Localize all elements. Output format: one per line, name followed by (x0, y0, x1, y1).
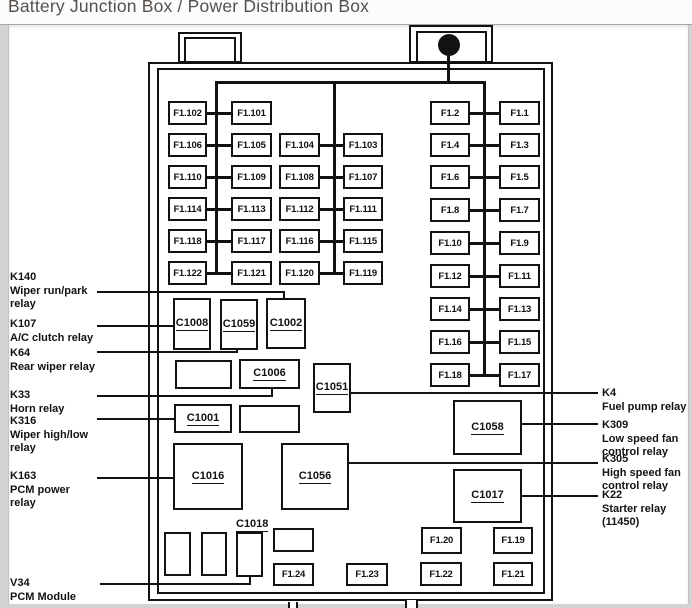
connector-label: C1017 (471, 489, 503, 503)
fuse-link-line (468, 144, 501, 147)
relay-label-k163: K163PCM powerrelay (10, 470, 70, 511)
fuse-link-line (318, 240, 345, 243)
pointer-line (97, 351, 238, 353)
fuse-box-f1-105: F1.105 (231, 133, 272, 157)
fuse-box-f1-4: F1.4 (430, 133, 470, 157)
fuse-link-line (205, 272, 233, 275)
connector-label: C1002 (270, 317, 302, 331)
connector-box-c1017: C1017 (453, 469, 522, 523)
pointer-line (97, 418, 176, 420)
pointer-line (97, 325, 175, 327)
pointer-line (249, 576, 251, 585)
connector-label: C1001 (187, 412, 219, 426)
relay-label-k316: K316Wiper high/lowrelay (10, 415, 88, 456)
relay-label-line: K163 (10, 470, 70, 484)
relay-label-line: K305 (602, 453, 681, 467)
fuse-link-line (468, 374, 501, 377)
connector-box-c1056: C1056 (281, 443, 349, 510)
fuse-box-f1-23: F1.23 (346, 563, 388, 586)
fuse-box-f1-13: F1.13 (499, 297, 540, 321)
fuse-box-f1-118: F1.118 (168, 229, 207, 253)
fuse-box-f1-2: F1.2 (430, 101, 470, 125)
relay-label-k33: K33Horn relay (10, 389, 64, 416)
fuse-box-f1-14: F1.14 (430, 297, 470, 321)
fuse-box-f1-106: F1.106 (168, 133, 207, 157)
fuse-link-line (468, 112, 501, 115)
connector-label: C1058 (471, 421, 503, 435)
relay-label-line: relay (10, 298, 88, 312)
relay-label-line: Low speed fan (602, 433, 678, 447)
fuse-box-f1-17: F1.17 (499, 363, 540, 387)
bus-line (483, 81, 486, 375)
fuse-box-f1-11: F1.11 (499, 264, 540, 288)
connector-box (201, 532, 227, 576)
relay-label-k107: K107A/C clutch relay (10, 318, 93, 345)
fuse-link-line (205, 240, 233, 243)
fuse-link-line (468, 176, 501, 179)
fuse-box-f1-16: F1.16 (430, 330, 470, 354)
connector-label: C1018 (236, 518, 268, 532)
fuse-link-line (318, 272, 345, 275)
connector-box-c1058: C1058 (453, 400, 522, 455)
relay-label-line: Horn relay (10, 403, 64, 417)
connector-box (236, 532, 263, 577)
pointer-line (349, 462, 598, 464)
relay-label-line: Starter relay (602, 503, 666, 517)
fuse-box-f1-115: F1.115 (343, 229, 383, 253)
relay-label-k64: K64Rear wiper relay (10, 347, 95, 374)
mount-tab-left-inner (184, 37, 236, 63)
connector-label: C1056 (299, 470, 331, 484)
fuse-link-line (205, 208, 233, 211)
relay-label-v34: V34PCM Module (10, 577, 76, 604)
relay-label-line: Wiper run/park (10, 285, 88, 299)
pointer-line (351, 392, 598, 394)
fuse-link-line (318, 176, 345, 179)
fuse-box-f1-15: F1.15 (499, 330, 540, 354)
fuse-box-f1-101: F1.101 (231, 101, 272, 125)
relay-label-line: Wiper high/low (10, 429, 88, 443)
pointer-line (522, 495, 598, 497)
fuse-box-f1-19: F1.19 (493, 527, 533, 554)
fuse-box-f1-12: F1.12 (430, 264, 470, 288)
fuse-link-line (205, 176, 233, 179)
fuse-link-line (468, 275, 501, 278)
fuse-box-f1-102: F1.102 (168, 101, 207, 125)
connector-box-c1016: C1016 (173, 443, 243, 510)
fuse-box-f1-1: F1.1 (499, 101, 540, 125)
fuse-box-f1-6: F1.6 (430, 165, 470, 189)
relay-label-line: K33 (10, 389, 64, 403)
fuse-box-f1-21: F1.21 (493, 562, 533, 586)
relay-label-k22: K22Starter relay(11450) (602, 489, 666, 530)
mount-notch (405, 600, 418, 608)
relay-label-k305: K305High speed fancontrol relay (602, 453, 681, 494)
fuse-link-line (318, 144, 345, 147)
connector-box-c1059: C1059 (220, 299, 258, 350)
connector-box-c1006: C1006 (239, 359, 300, 389)
fuse-box-f1-10: F1.10 (430, 231, 470, 255)
pointer-line (522, 423, 598, 425)
fuse-link-line (318, 208, 345, 211)
fuse-box-f1-20: F1.20 (421, 527, 462, 554)
pointer-line (97, 291, 284, 293)
relay-label-line: Fuel pump relay (602, 401, 686, 415)
fuse-box-f1-117: F1.117 (231, 229, 272, 253)
connector-label: C1016 (192, 470, 224, 484)
relay-label-line: K316 (10, 415, 88, 429)
fuse-box-f1-8: F1.8 (430, 198, 470, 222)
pointer-line (97, 477, 175, 479)
relay-label-k4: K4Fuel pump relay (602, 387, 686, 414)
connector-label: C1006 (253, 367, 285, 381)
bus-line (218, 81, 486, 84)
relay-label-line: K64 (10, 347, 95, 361)
fuse-box-f1-114: F1.114 (168, 197, 207, 221)
fuse-box-f1-9: F1.9 (499, 231, 540, 255)
connector-label: C1059 (223, 318, 255, 332)
fuse-box-f1-119: F1.119 (343, 261, 383, 285)
fuse-box-f1-112: F1.112 (279, 197, 320, 221)
fuse-box-f1-5: F1.5 (499, 165, 540, 189)
connector-label: C1051 (316, 381, 348, 395)
connector-box-c1051: C1051 (313, 363, 351, 413)
connector-box-c1008: C1008 (173, 298, 211, 350)
relay-label-line: PCM Module (10, 591, 76, 605)
relay-label-line: relay (10, 442, 88, 456)
connector-label: C1008 (176, 317, 208, 331)
relay-label-line: High speed fan (602, 467, 681, 481)
fuse-box-f1-120: F1.120 (279, 261, 320, 285)
fuse-box-f1-107: F1.107 (343, 165, 383, 189)
fuse-box-f1-109: F1.109 (231, 165, 272, 189)
relay-label-line: A/C clutch relay (10, 332, 93, 346)
connector-box-c1001: C1001 (174, 404, 232, 433)
fuse-link-line (205, 112, 233, 115)
fuse-box-f1-122: F1.122 (168, 261, 207, 285)
relay-label-line: PCM power (10, 484, 70, 498)
fuse-box-f1-24: F1.24 (273, 563, 314, 586)
fuse-box-f1-116: F1.116 (279, 229, 320, 253)
connector-box (273, 528, 314, 552)
fuse-link-line (468, 308, 501, 311)
fuse-link-line (468, 209, 501, 212)
fuse-link-line (468, 341, 501, 344)
relay-label-line: K309 (602, 419, 678, 433)
relay-label-line: relay (10, 497, 70, 511)
fuse-box-f1-103: F1.103 (343, 133, 383, 157)
fuse-link-line (468, 242, 501, 245)
fuse-box-f1-18: F1.18 (430, 363, 470, 387)
fuse-box-f1-113: F1.113 (231, 197, 272, 221)
relay-label-line: K107 (10, 318, 93, 332)
fuse-box-f1-3: F1.3 (499, 133, 540, 157)
fuse-box-f1-121: F1.121 (231, 261, 272, 285)
fuse-box-f1-7: F1.7 (499, 198, 540, 222)
relay-label-line: K4 (602, 387, 686, 401)
connector-box (239, 405, 300, 433)
relay-label-line: K140 (10, 271, 88, 285)
relay-label-line: V34 (10, 577, 76, 591)
fuse-box-f1-104: F1.104 (279, 133, 320, 157)
relay-label-line: K22 (602, 489, 666, 503)
fuse-box-f1-110: F1.110 (168, 165, 207, 189)
pointer-line (97, 395, 273, 397)
connector-label-c1018: C1018 (236, 514, 268, 532)
fuse-box-diagram: F1.102F1.101F1.106F1.105F1.110F1.109F1.1… (0, 0, 692, 608)
mount-notch (288, 602, 298, 608)
connector-box-c1002: C1002 (266, 298, 306, 349)
connector-box (175, 360, 232, 389)
fuse-link-line (205, 144, 233, 147)
connector-box (164, 532, 191, 576)
fuse-box-f1-108: F1.108 (279, 165, 320, 189)
pointer-line (100, 583, 251, 585)
relay-label-line: (11450) (602, 516, 666, 530)
pointer-line (271, 388, 273, 397)
fuse-box-f1-22: F1.22 (420, 562, 462, 586)
relay-label-line: Rear wiper relay (10, 361, 95, 375)
relay-label-k140: K140Wiper run/parkrelay (10, 271, 88, 312)
fuse-box-f1-111: F1.111 (343, 197, 383, 221)
stud-line (447, 45, 450, 83)
